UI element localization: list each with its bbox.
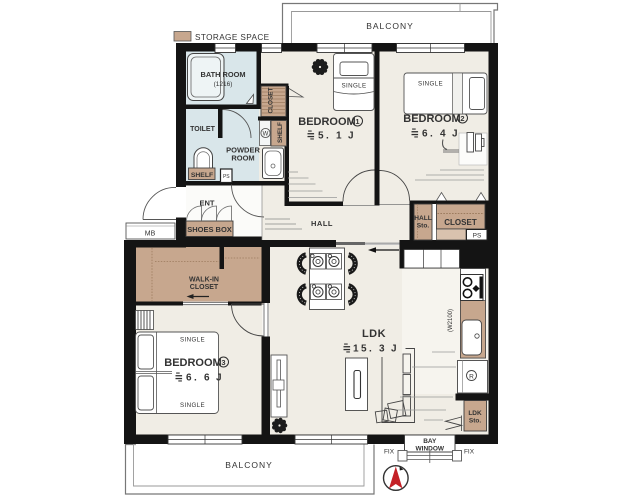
svg-text:BALCONY: BALCONY [225, 460, 273, 470]
svg-text:TOILET: TOILET [190, 126, 215, 133]
svg-text:.: . [369, 344, 372, 355]
svg-text:LDK: LDK [468, 410, 482, 417]
svg-text:SINGLE: SINGLE [341, 83, 366, 90]
svg-text:CLOSET: CLOSET [190, 284, 219, 291]
svg-text:2: 2 [460, 114, 464, 123]
svg-text:ROOM: ROOM [231, 154, 254, 163]
svg-text:STORAGE SPACE: STORAGE SPACE [195, 33, 270, 42]
svg-text:3: 3 [221, 358, 225, 367]
svg-text:PS: PS [473, 233, 482, 240]
svg-text:CLOSET: CLOSET [444, 218, 477, 227]
svg-text:BEDROOM: BEDROOM [164, 357, 221, 369]
svg-text:(W2100): (W2100) [448, 309, 454, 332]
svg-text:BATH ROOM: BATH ROOM [200, 70, 245, 79]
svg-text:CLOSET: CLOSET [268, 87, 275, 113]
svg-text:SINGLE: SINGLE [180, 337, 205, 344]
svg-text:1: 1 [353, 344, 359, 355]
svg-text:Sto.: Sto. [417, 223, 430, 230]
svg-text:LDK: LDK [362, 328, 386, 340]
svg-text:R: R [469, 373, 474, 380]
svg-text:WINDOW: WINDOW [416, 446, 445, 453]
svg-text:FIX: FIX [384, 449, 395, 456]
svg-text:HALL: HALL [311, 219, 333, 228]
svg-text:BEDROOM: BEDROOM [298, 116, 355, 128]
svg-text:5: 5 [361, 344, 367, 355]
svg-text:.: . [430, 129, 433, 140]
svg-text:3: 3 [379, 344, 385, 355]
svg-text:MB: MB [145, 231, 156, 238]
svg-text:SHOES BOX: SHOES BOX [187, 225, 232, 234]
svg-text:W: W [263, 132, 269, 138]
svg-text:PS: PS [223, 174, 230, 180]
svg-text:J: J [391, 344, 397, 355]
svg-text:Sto.: Sto. [469, 418, 481, 425]
svg-text:6: 6 [422, 129, 428, 140]
svg-text:6: 6 [204, 373, 210, 384]
svg-text:SINGLE: SINGLE [180, 402, 205, 409]
svg-text:SINGLE: SINGLE [418, 81, 443, 88]
svg-text:J: J [216, 373, 222, 384]
svg-text:6: 6 [186, 373, 192, 384]
svg-text:1: 1 [336, 131, 342, 142]
svg-text:SHELF: SHELF [277, 122, 284, 143]
svg-text:ENT: ENT [200, 199, 215, 208]
svg-text:WALK-IN: WALK-IN [189, 277, 219, 284]
svg-text:BAY: BAY [423, 438, 437, 445]
svg-text:SHELF: SHELF [191, 172, 213, 179]
svg-text:(1216): (1216) [214, 81, 233, 88]
svg-text:HALL: HALL [414, 215, 432, 222]
svg-text:1: 1 [355, 117, 359, 126]
svg-text:4: 4 [440, 129, 446, 140]
svg-text:.: . [326, 131, 329, 142]
svg-text:FIX: FIX [464, 449, 475, 456]
svg-text:.: . [194, 373, 197, 384]
svg-text:BALCONY: BALCONY [366, 21, 414, 31]
svg-text:J: J [452, 129, 458, 140]
svg-text:BEDROOM: BEDROOM [403, 113, 460, 125]
svg-text:5: 5 [318, 131, 324, 142]
svg-text:J: J [348, 131, 354, 142]
